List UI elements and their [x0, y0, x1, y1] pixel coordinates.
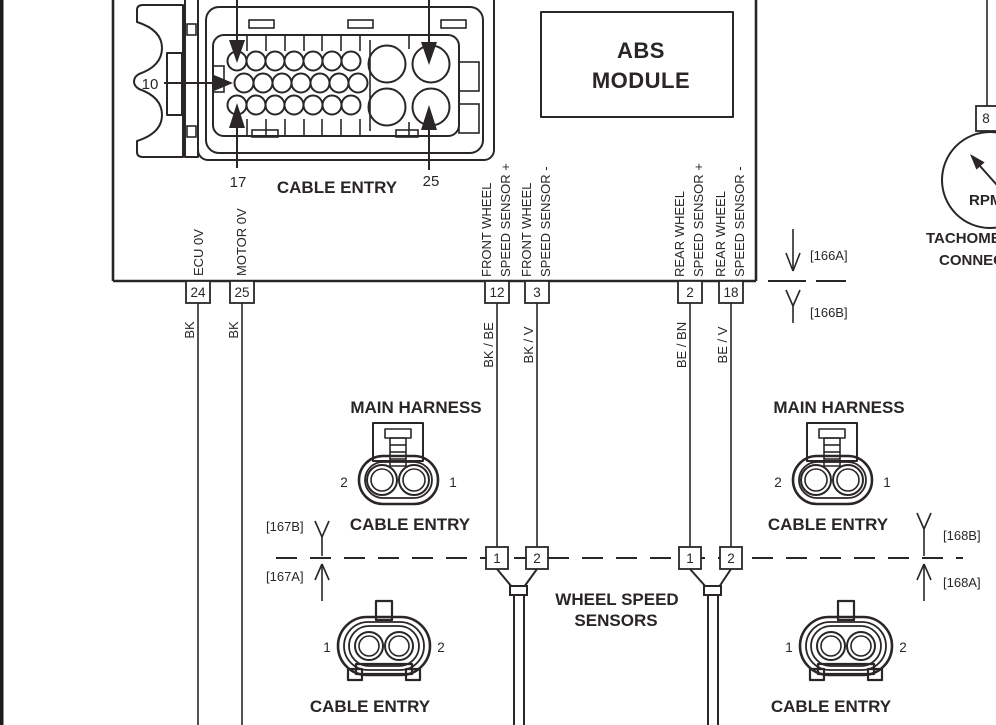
- module-wires: [198, 303, 731, 725]
- label-168b: [168B]: [943, 528, 981, 543]
- socket-y-166b-icon: [786, 290, 800, 323]
- arrow-down-166a-icon: [786, 229, 800, 271]
- label-167a: [167A]: [266, 569, 304, 584]
- signal-rws-plus-l1: REAR WHEEL: [672, 191, 687, 277]
- front-harness-pin-2: 2: [340, 475, 348, 490]
- pin-18: 18: [723, 285, 738, 300]
- module-connector-face: 10 17 25 CABLE ENTRY: [134, 0, 494, 197]
- label-166b: [166B]: [810, 305, 848, 320]
- wire-color-labels: BK BK BK / BE BK / V BE / BN BE / V: [182, 321, 730, 368]
- front-harness-connector: MAIN HARNESS 2 1 CABLE ENTRY: [340, 398, 481, 534]
- wss-label-line2: SENSORS: [574, 611, 657, 630]
- rear-harness-pin-2: 2: [774, 475, 782, 490]
- rear-sensor-splice: 1 2: [679, 547, 742, 725]
- front-harness-pin-1: 1: [449, 475, 457, 490]
- large-pin-cavities: [369, 46, 450, 126]
- wire-be-v: BE / V: [715, 326, 730, 363]
- pin-2: 2: [686, 285, 694, 300]
- rear-harness-title: MAIN HARNESS: [773, 398, 904, 417]
- sensor-connector-icon: [800, 601, 892, 680]
- label-167b: [167B]: [266, 519, 304, 534]
- pin-callout-arrows: [164, 0, 437, 170]
- page-edge-strip: [0, 0, 4, 725]
- tachometer-name-line1: TACHOMETER: [926, 230, 996, 247]
- front-harness-title: MAIN HARNESS: [350, 398, 481, 417]
- wheel-speed-sensors-label: WHEEL SPEED SENSORS: [555, 590, 678, 630]
- rear-harness-cable-entry: CABLE ENTRY: [768, 515, 889, 534]
- wire-bk-1: BK: [182, 321, 197, 339]
- module-signal-labels: ECU 0V MOTOR 0V FRONT WHEEL SPEED SENSOR…: [191, 163, 747, 277]
- connector-cable-entry-label: CABLE ENTRY: [277, 178, 398, 197]
- pin10-callout-label: 10: [142, 76, 159, 93]
- pin25-callout-label: 25: [423, 173, 440, 190]
- tachometer-connector: 8 RPM TACHOMETER CONNECTOR: [926, 0, 996, 269]
- wss-label-line1: WHEEL SPEED: [555, 590, 678, 609]
- front-sensor-pin-2: 2: [437, 640, 445, 655]
- pin-24: 24: [190, 285, 206, 300]
- front-sensor-cable-entry: CABLE ENTRY: [310, 697, 431, 716]
- wiring-diagram-canvas: ABS MODULE: [0, 0, 996, 725]
- connector-166: [166A] [166B]: [768, 229, 848, 323]
- small-pin-cavities: [228, 52, 368, 115]
- front-harness-cable-entry: CABLE ENTRY: [350, 515, 471, 534]
- label-168a: [168A]: [943, 575, 981, 590]
- abs-module-title-line1: ABS: [617, 38, 665, 63]
- socket-y-167b-icon: [315, 521, 329, 556]
- tachometer-name-line2: CONNECTOR: [939, 252, 996, 269]
- harness-connector-icon: [793, 423, 872, 504]
- signal-fws-minus-l2: SPEED SENSOR -: [538, 166, 553, 277]
- wire-be-bn: BE / BN: [674, 322, 689, 368]
- pin-3: 3: [533, 285, 541, 300]
- tach-pin-8: 8: [982, 111, 990, 126]
- arrow-up-167a-icon: [315, 564, 329, 601]
- sensor-connector-icon: [338, 601, 430, 680]
- front-sensor-connector: 1 2 CABLE ENTRY: [310, 601, 445, 716]
- front-splice-pin-2: 2: [533, 551, 541, 566]
- rear-splice-pin-2: 2: [727, 551, 735, 566]
- wire-bk-v: BK / V: [521, 326, 536, 363]
- harness-connector-icon: [359, 423, 438, 504]
- signal-motor-0v: MOTOR 0V: [234, 208, 249, 276]
- wiring-diagram-page: ABS MODULE: [0, 0, 996, 725]
- label-166a: [166A]: [810, 248, 848, 263]
- wire-bk-be: BK / BE: [481, 322, 496, 368]
- socket-y-168b-icon: [917, 513, 931, 556]
- pin-12: 12: [489, 285, 504, 300]
- signal-fws-plus-l1: FRONT WHEEL: [479, 183, 494, 277]
- signal-fws-minus-l1: FRONT WHEEL: [519, 183, 534, 277]
- front-splice-pin-1: 1: [493, 551, 501, 566]
- abs-module-box: ABS MODULE: [541, 12, 733, 117]
- module-pin-terminals: 24 25 12 3 2 18: [186, 281, 743, 303]
- rear-sensor-pin-1: 1: [785, 640, 793, 655]
- wire-bk-2: BK: [226, 321, 241, 339]
- signal-rws-minus-l1: REAR WHEEL: [713, 191, 728, 277]
- gauge-rpm-label: RPM: [969, 192, 996, 209]
- signal-rws-plus-l2: SPEED SENSOR +: [691, 163, 706, 277]
- rear-harness-connector: MAIN HARNESS 2 1 CABLE ENTRY: [768, 398, 905, 534]
- rear-splice-pin-1: 1: [686, 551, 694, 566]
- rear-harness-pin-1: 1: [883, 475, 891, 490]
- pin17-callout-label: 17: [230, 174, 247, 191]
- front-sensor-pin-1: 1: [323, 640, 331, 655]
- rear-sensor-cable-entry: CABLE ENTRY: [771, 697, 892, 716]
- signal-rws-minus-l2: SPEED SENSOR -: [732, 166, 747, 277]
- tachometer-gauge-icon: [942, 132, 996, 228]
- signal-fws-plus-l2: SPEED SENSOR +: [498, 163, 513, 277]
- rear-sensor-connector: 1 2 CABLE ENTRY: [771, 601, 907, 716]
- front-sensor-splice: 1 2: [486, 547, 548, 725]
- abs-module-title-line2: MODULE: [592, 68, 690, 93]
- arrow-up-168a-icon: [917, 564, 931, 601]
- pin-25: 25: [234, 285, 249, 300]
- connector-167: [167B] [167A]: [266, 519, 329, 601]
- rear-sensor-pin-2: 2: [899, 640, 907, 655]
- signal-ecu-0v: ECU 0V: [191, 229, 206, 276]
